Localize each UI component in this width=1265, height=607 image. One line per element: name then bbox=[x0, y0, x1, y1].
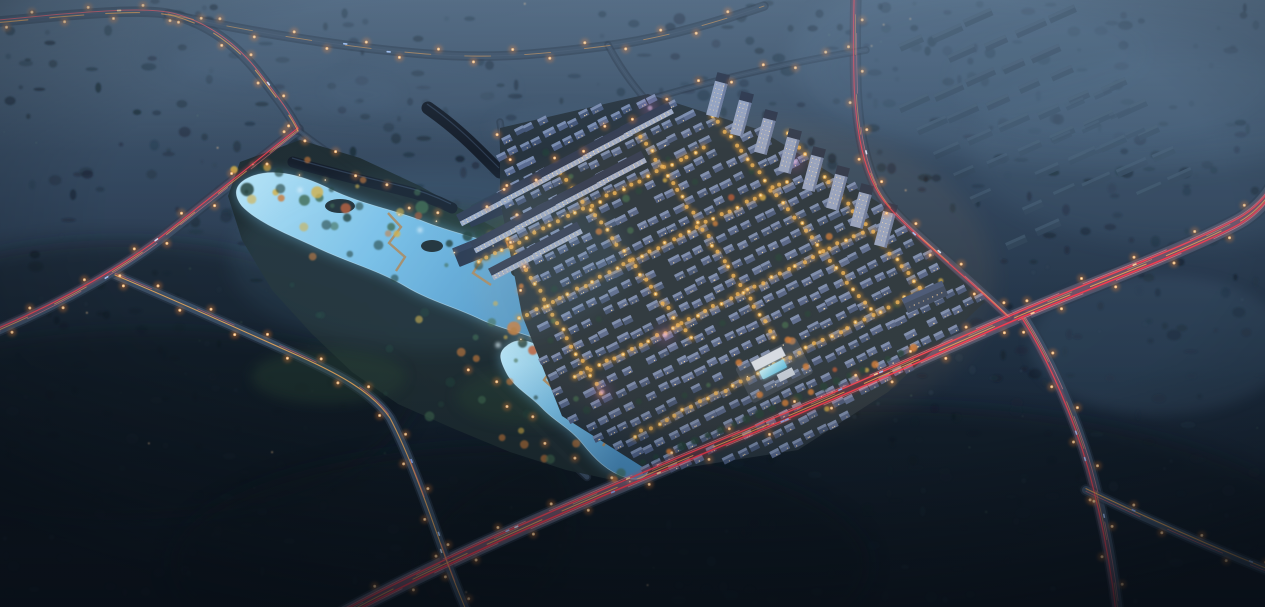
masterplan-aerial-svg bbox=[0, 0, 1265, 607]
night-aerial-masterplan-rendering bbox=[0, 0, 1265, 607]
scene-root bbox=[0, 0, 1265, 607]
vignette bbox=[0, 0, 1265, 607]
atmosphere-overlays bbox=[0, 0, 1265, 607]
